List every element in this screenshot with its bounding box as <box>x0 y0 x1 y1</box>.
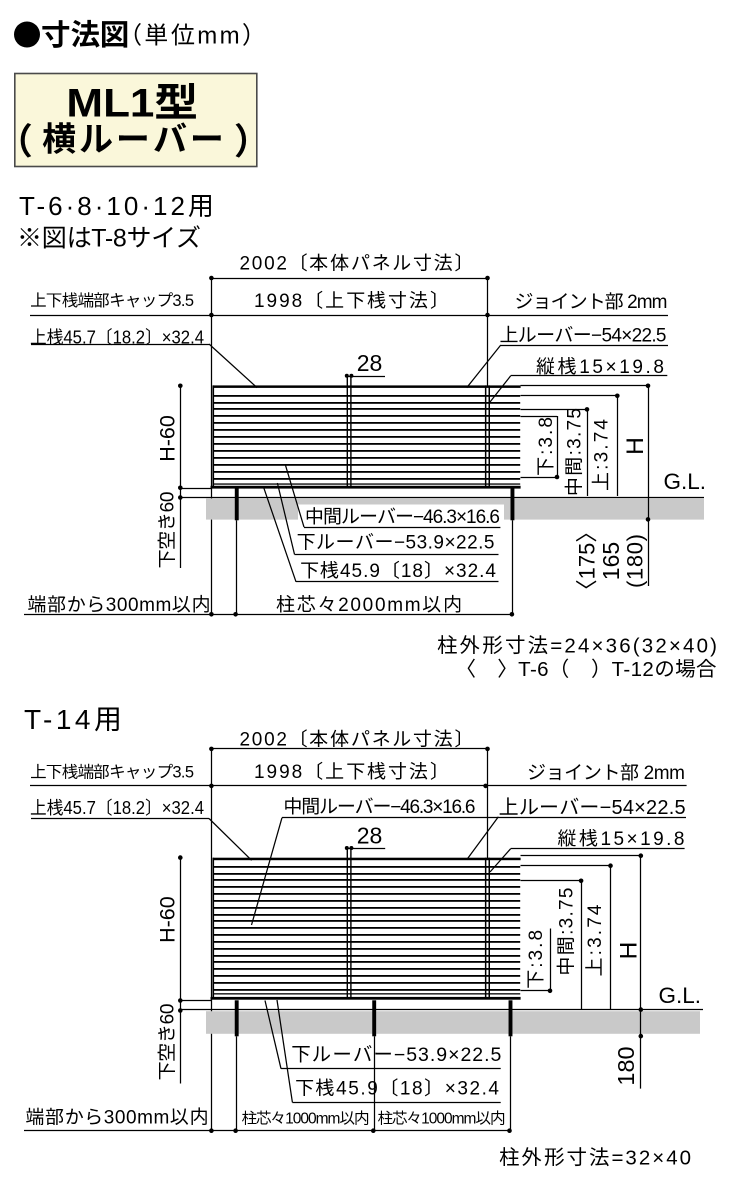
svg-text:柱芯々1000mm以内: 柱芯々1000mm以内 <box>378 1107 506 1129</box>
svg-text:H-60: H-60 <box>151 415 182 462</box>
svg-text:柱外形寸法=32×40: 柱外形寸法=32×40 <box>499 1141 691 1171</box>
svg-text:端部から300mm以内: 端部から300mm以内 <box>28 590 211 617</box>
svg-text:上桟45.7〔18.2〕×32.4: 上桟45.7〔18.2〕×32.4 <box>30 794 204 820</box>
svg-text:2002〔本体パネル寸法〕: 2002〔本体パネル寸法〕 <box>240 249 474 276</box>
svg-text:（: （ <box>0 113 33 165</box>
svg-text:中間:3.75: 中間:3.75 <box>560 408 587 496</box>
svg-text:(180): (180) <box>618 534 650 588</box>
svg-text:下空き60: 下空き60 <box>152 1004 179 1081</box>
svg-text:2002〔本体パネル寸法〕: 2002〔本体パネル寸法〕 <box>240 725 474 752</box>
svg-text:下:3.8: 下:3.8 <box>531 417 558 476</box>
svg-text:ジョイント部 2mm: ジョイント部 2mm <box>527 758 685 785</box>
svg-text:上:3.74: 上:3.74 <box>580 904 607 976</box>
svg-text:※図はT-8サイズ: ※図はT-8サイズ <box>17 219 201 255</box>
svg-text:下ルーバー−53.9×22.5: 下ルーバー−53.9×22.5 <box>291 1038 501 1067</box>
svg-text:〈 〉T-6（ ）T-12の場合: 〈 〉T-6（ ）T-12の場合 <box>456 652 718 682</box>
svg-text:下ルーバー−53.9×22.5: 下ルーバー−53.9×22.5 <box>297 528 495 555</box>
svg-text:1998〔上下桟寸法〕: 1998〔上下桟寸法〕 <box>254 286 449 313</box>
svg-text:上ルーバー−54×22.5: 上ルーバー−54×22.5 <box>499 791 686 820</box>
svg-text:180: 180 <box>607 1046 641 1085</box>
svg-text:下桟45.9〔18〕×32.4: 下桟45.9〔18〕×32.4 <box>295 1074 499 1101</box>
svg-text:28: 28 <box>357 817 383 851</box>
svg-text:横ルーバー: 横ルーバー <box>42 112 224 161</box>
svg-text:下桟45.9〔18〕×32.4: 下桟45.9〔18〕×32.4 <box>300 556 496 583</box>
svg-text:H: H <box>609 942 644 960</box>
svg-text:上:3.74: 上:3.74 <box>587 419 614 491</box>
svg-text:ジョイント部 2mm: ジョイント部 2mm <box>515 287 668 314</box>
svg-text:（単位mm）: （単位mm） <box>118 16 266 51</box>
svg-text:上下桟端部キャップ3.5: 上下桟端部キャップ3.5 <box>30 287 194 311</box>
svg-text:G.L.: G.L. <box>659 978 702 1010</box>
svg-text:上ルーバー−54×22.5: 上ルーバー−54×22.5 <box>500 321 667 348</box>
svg-text:中間ルーバー−46.3×16.6: 中間ルーバー−46.3×16.6 <box>305 502 500 529</box>
svg-text:上下桟端部キャップ3.5: 上下桟端部キャップ3.5 <box>30 759 194 783</box>
svg-text:下:3.8: 下:3.8 <box>521 930 548 989</box>
svg-text:縦桟15×19.8: 縦桟15×19.8 <box>536 352 664 379</box>
svg-text:下空き60: 下空き60 <box>152 492 179 569</box>
svg-text:端部から300mm以内: 端部から300mm以内 <box>26 1103 209 1130</box>
svg-text:柱芯々2000mm以内: 柱芯々2000mm以内 <box>276 590 462 617</box>
svg-text:T-6·8·10·12用: T-6·8·10·12用 <box>19 186 214 223</box>
svg-text:）: ） <box>234 113 270 165</box>
svg-text:28: 28 <box>357 344 383 378</box>
svg-text:上桟45.7〔18.2〕×32.4: 上桟45.7〔18.2〕×32.4 <box>30 324 204 350</box>
svg-text:T-14用: T-14用 <box>24 698 122 738</box>
svg-text:G.L.: G.L. <box>664 464 707 496</box>
svg-text:寸法図: 寸法図 <box>41 12 130 54</box>
svg-text:中間ルーバー−46.3×16.6: 中間ルーバー−46.3×16.6 <box>284 792 476 819</box>
svg-text:1998〔上下桟寸法〕: 1998〔上下桟寸法〕 <box>254 757 449 784</box>
svg-text:縦桟15×19.8: 縦桟15×19.8 <box>558 824 685 851</box>
svg-text:中間:3.75: 中間:3.75 <box>551 888 578 976</box>
svg-text:H-60: H-60 <box>151 896 182 943</box>
svg-text:H: H <box>616 437 651 455</box>
svg-text:柱芯々1000mm以内: 柱芯々1000mm以内 <box>242 1107 370 1129</box>
